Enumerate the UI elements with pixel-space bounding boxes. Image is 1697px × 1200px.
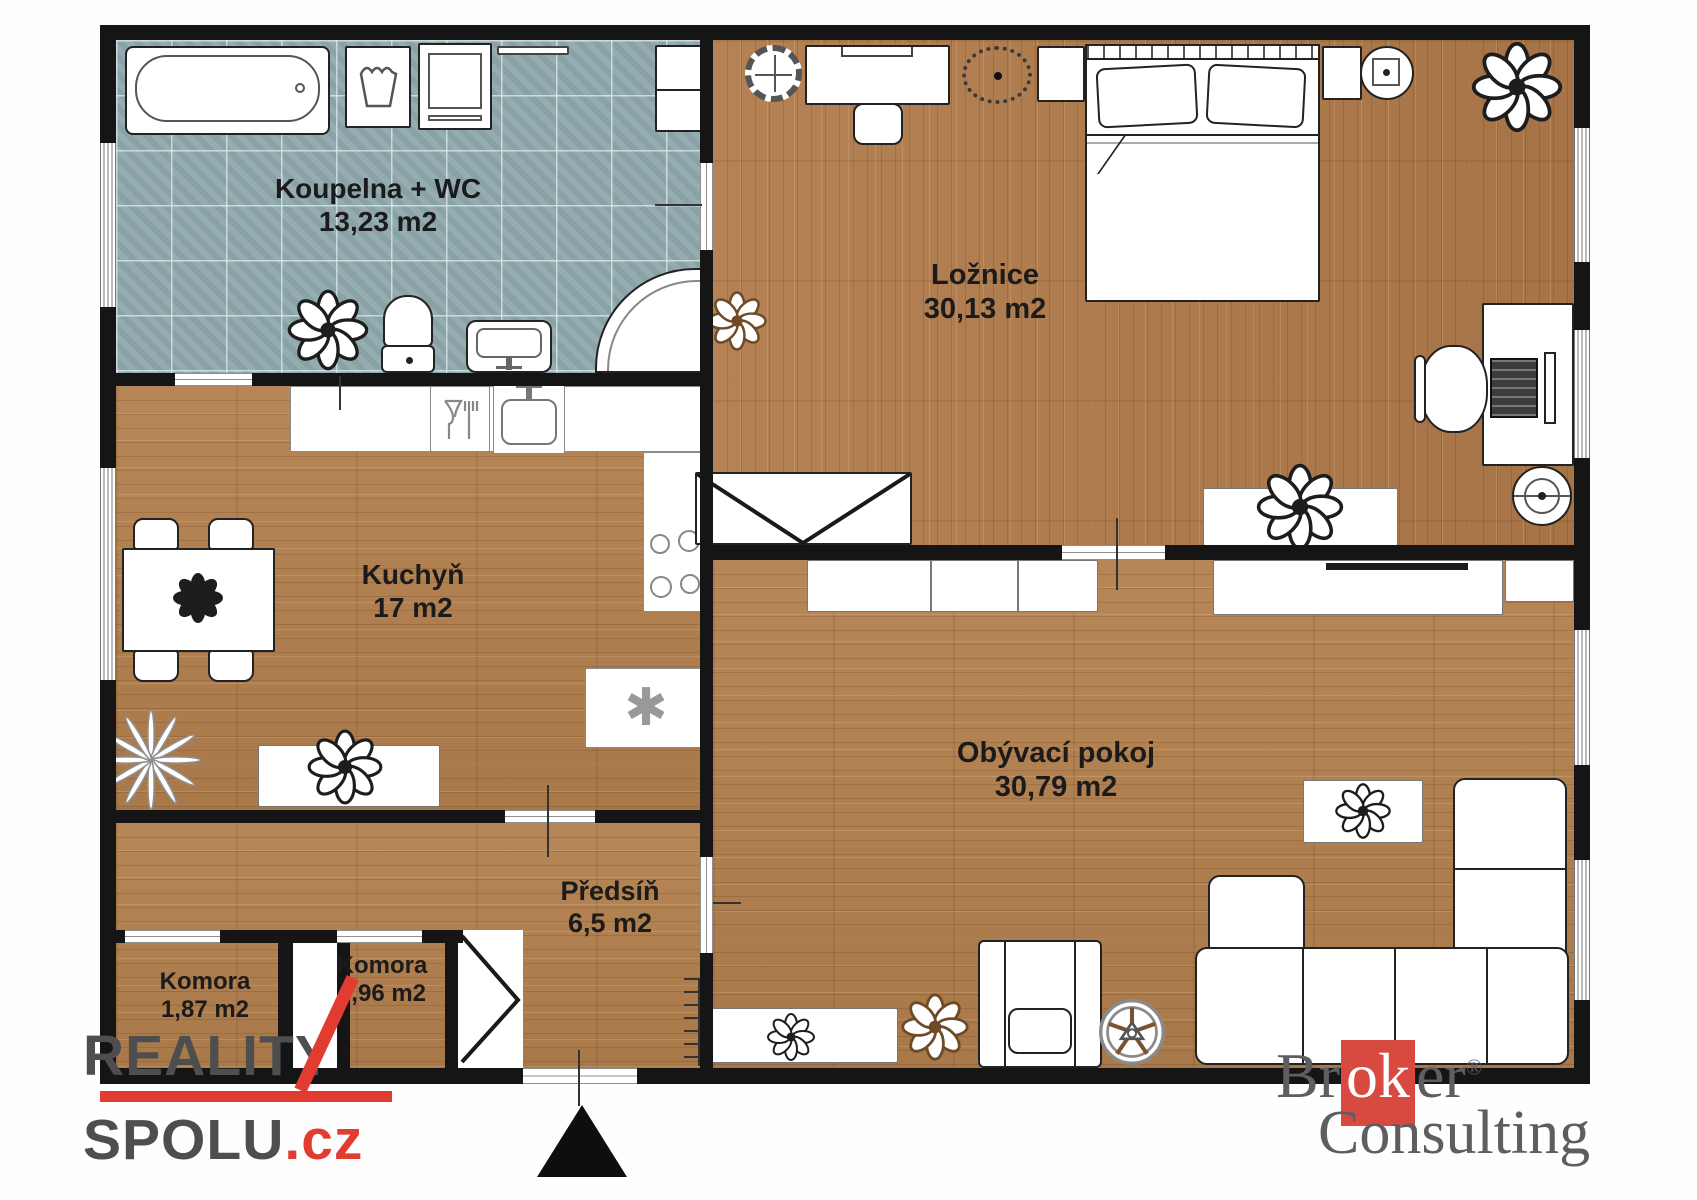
room-name: Kuchyň <box>362 559 465 590</box>
wall <box>445 930 458 1068</box>
wall <box>1165 545 1574 560</box>
room-area: 17 m2 <box>373 592 452 623</box>
plant-icon <box>706 278 768 364</box>
room-label-kitchen: Kuchyň 17 m2 <box>362 558 465 624</box>
nightstand <box>1322 46 1362 100</box>
door-mark <box>547 785 549 857</box>
tv-bench <box>1213 560 1503 615</box>
north-arrow-stem <box>578 1050 580 1106</box>
room-label-bedroom: Ložnice 30,13 m2 <box>924 258 1047 326</box>
sideboard-plant-icon <box>300 728 390 806</box>
toilet <box>383 295 433 347</box>
wheel-table-icon <box>1098 998 1166 1066</box>
wall <box>100 25 116 143</box>
room-area: 30,79 m2 <box>995 771 1118 803</box>
room-area: 1,87 m2 <box>161 996 249 1023</box>
bathtub <box>125 46 330 135</box>
door-mark <box>1116 518 1118 590</box>
tv-icon <box>1326 563 1468 570</box>
window <box>1574 330 1590 458</box>
wall <box>700 953 713 1068</box>
toilet-tank <box>381 345 435 373</box>
towel-rail <box>497 46 569 55</box>
chair <box>208 518 254 550</box>
wall <box>1574 25 1590 128</box>
plant-icon <box>1462 40 1572 134</box>
kitchen-sink <box>493 382 565 454</box>
radiator <box>684 978 701 1066</box>
logo-tld: .cz <box>284 1108 363 1172</box>
window <box>100 468 116 680</box>
plant-icon <box>900 986 970 1068</box>
north-arrow-icon <box>537 1105 627 1177</box>
door-threshold <box>700 163 713 250</box>
vanity-desk <box>805 45 950 105</box>
wall <box>100 25 1590 40</box>
desk <box>1482 303 1574 466</box>
dryer <box>418 43 492 130</box>
door-threshold <box>1062 545 1165 560</box>
wall <box>252 373 712 386</box>
ceiling-fan-icon <box>745 45 802 102</box>
wall <box>100 307 116 468</box>
bed <box>1085 44 1320 302</box>
wall <box>700 545 1062 560</box>
door-mark <box>655 204 702 206</box>
office-chair <box>1420 345 1488 433</box>
door-mark <box>339 376 341 410</box>
palm-plant-icon <box>112 718 190 802</box>
round-side-table <box>1360 46 1414 100</box>
bathroom-cabinet <box>655 45 702 132</box>
washing-machine <box>345 46 411 128</box>
room-name: Předsíň <box>560 876 659 906</box>
room-name: Komora <box>160 968 251 995</box>
logo-underline <box>100 1091 392 1102</box>
reality-spolu-logo: REALITY <box>83 1028 334 1085</box>
coffee-table-plant-icon <box>1333 782 1393 840</box>
room-name: Obývací pokoj <box>957 737 1155 769</box>
wall <box>116 930 125 943</box>
room-area: 6,5 m2 <box>568 908 652 938</box>
room-label-bathroom: Koupelna + WC 13,23 m2 <box>275 172 481 238</box>
registered-mark-icon: ® <box>1466 1055 1483 1080</box>
room-area: 13,23 m2 <box>319 206 437 237</box>
window <box>1574 630 1590 765</box>
bench-plant-icon <box>762 1012 820 1062</box>
rug-icon <box>962 46 1032 104</box>
chair <box>133 650 179 682</box>
room-area: 30,13 m2 <box>924 293 1047 325</box>
freezer: ✱ <box>585 668 707 748</box>
window <box>1574 128 1590 262</box>
room-label-storage1: Komora 1,87 m2 <box>160 968 251 1025</box>
door-threshold <box>125 930 220 943</box>
plant-icon <box>283 288 373 372</box>
door-threshold <box>337 930 422 943</box>
stool <box>853 103 903 145</box>
window <box>1574 860 1590 1000</box>
wall <box>1574 765 1590 860</box>
chair <box>208 650 254 682</box>
room-name: Komora <box>337 952 428 979</box>
room-label-hall: Předsíň 6,5 m2 <box>560 876 659 940</box>
living-sideboard <box>807 560 1098 612</box>
washbasin <box>466 320 552 373</box>
table-plant-icon <box>172 572 224 624</box>
round-table <box>1512 466 1572 526</box>
window <box>100 143 116 307</box>
door-threshold <box>505 810 595 823</box>
entrance-threshold <box>523 1068 637 1084</box>
room-label-living: Obývací pokoj 30,79 m2 <box>957 736 1155 804</box>
wall <box>1574 262 1590 330</box>
logo-line2: Consulting <box>1318 1102 1590 1164</box>
wall <box>116 810 505 823</box>
reality-spolu-logo-line2: SPOLU.cz <box>83 1112 363 1169</box>
door-mark <box>713 902 741 904</box>
door-threshold <box>175 373 252 386</box>
cabinet <box>1505 560 1574 602</box>
wall <box>116 373 175 386</box>
sideboard-plant-icon <box>1248 462 1352 552</box>
wall <box>595 810 713 823</box>
wardrobe <box>695 472 912 545</box>
logo-text: SPOLU <box>83 1108 284 1172</box>
dishwasher <box>430 386 490 452</box>
wall <box>1574 458 1590 630</box>
room-name: Ložnice <box>931 259 1039 291</box>
door-threshold <box>700 857 713 953</box>
chair <box>133 518 179 550</box>
office-chair-back <box>1414 355 1426 423</box>
wall <box>700 40 713 163</box>
nightstand <box>1037 46 1085 102</box>
entrance-door-swing-icon <box>458 930 523 1068</box>
armchair <box>978 940 1102 1068</box>
room-name: Koupelna + WC <box>275 173 481 204</box>
logo-text: REALITY <box>83 1028 334 1085</box>
floor-plan: ✱ <box>0 0 1697 1200</box>
broker-consulting-logo: Broker® Consulting <box>1276 1040 1590 1164</box>
